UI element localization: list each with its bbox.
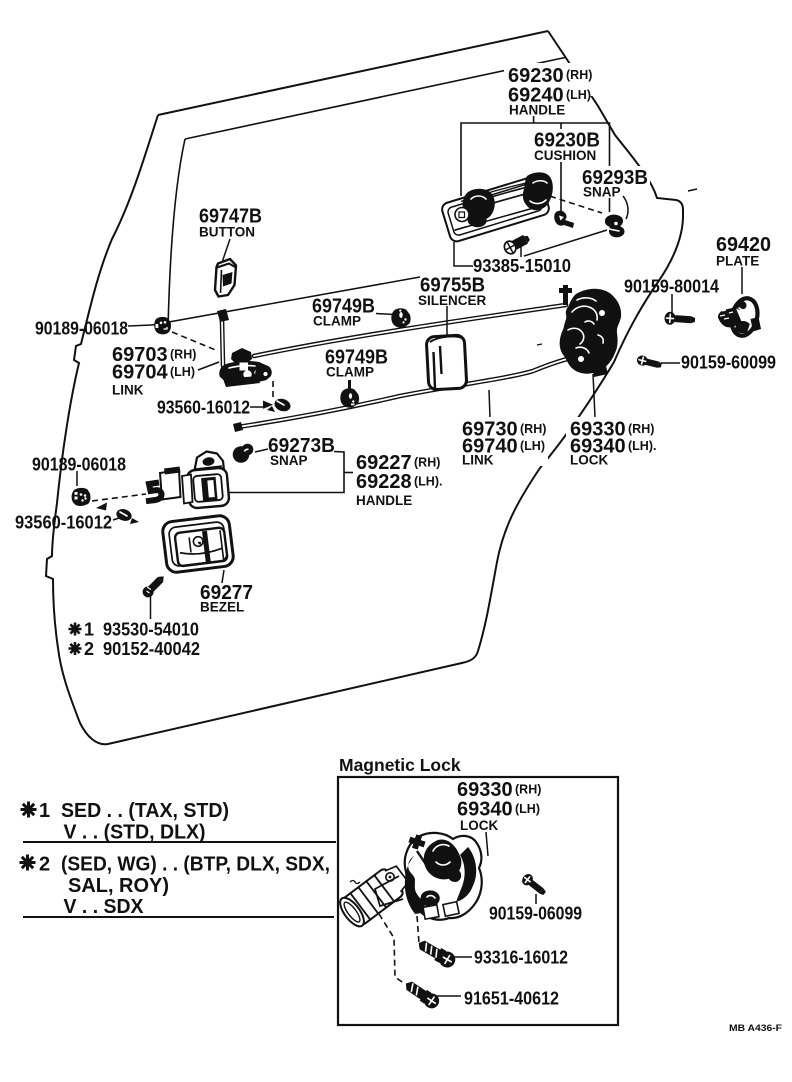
svg-text:69228: 69228 [356,471,412,493]
svg-text:90159-80014: 90159-80014 [624,277,719,297]
svg-text:2: 2 [39,854,50,876]
svg-text:(LH).: (LH). [414,475,442,489]
svg-text:(RH): (RH) [566,68,592,82]
svg-text:(RH): (RH) [170,348,196,362]
svg-text:90189-06018: 90189-06018 [32,455,126,475]
svg-text:1: 1 [84,620,94,640]
svg-text:LINK: LINK [112,383,144,398]
svg-text:LOCK: LOCK [460,818,498,833]
svg-text:(LH).: (LH). [628,439,656,453]
svg-text:(RH): (RH) [520,422,546,436]
svg-text:CLAMP: CLAMP [313,314,361,329]
svg-text:V . . SDX: V . . SDX [64,896,145,918]
svg-text:90152-40042: 90152-40042 [103,639,200,659]
svg-text:90159-60099: 90159-60099 [681,353,776,373]
svg-text:90189-06018: 90189-06018 [35,319,128,339]
svg-text:(LH): (LH) [170,365,195,379]
svg-text:(RH): (RH) [515,783,541,797]
svg-text:SED . . (TAX, STD): SED . . (TAX, STD) [61,800,229,822]
svg-text:91651-40612: 91651-40612 [464,989,559,1009]
svg-text:Magnetic Lock: Magnetic Lock [339,755,461,775]
svg-text:93316-16012: 93316-16012 [474,948,568,968]
svg-text:90159-06099: 90159-06099 [489,904,582,924]
svg-text:PLATE: PLATE [716,254,759,269]
svg-text:2: 2 [84,639,94,659]
svg-text:CUSHION: CUSHION [534,148,596,163]
svg-text:HANDLE: HANDLE [509,103,565,118]
svg-text:93530-54010: 93530-54010 [103,620,199,640]
svg-text:V . . (STD, DLX): V . . (STD, DLX) [64,822,206,844]
svg-text:(LH): (LH) [566,88,591,102]
svg-text:(SED, WG) . . (BTP, DLX, SDX,: (SED, WG) . . (BTP, DLX, SDX, [61,854,330,876]
svg-text:HANDLE: HANDLE [356,493,412,508]
svg-text:(LH): (LH) [520,439,545,453]
svg-text:BUTTON: BUTTON [199,225,255,240]
svg-text:SNAP: SNAP [270,453,308,468]
svg-text:(LH): (LH) [515,802,540,816]
svg-text:LINK: LINK [462,453,494,468]
svg-text:MB A436-F: MB A436-F [729,1023,782,1034]
svg-text:SILENCER: SILENCER [418,293,487,308]
svg-text:SNAP: SNAP [583,185,621,200]
svg-text:93560-16012: 93560-16012 [15,513,112,533]
svg-text:SAL, ROY): SAL, ROY) [68,875,169,897]
svg-text:1: 1 [39,800,50,822]
svg-text:93385-15010: 93385-15010 [473,256,571,276]
svg-text:(RH): (RH) [414,456,440,470]
svg-text:93560-16012: 93560-16012 [157,398,250,418]
svg-text:BEZEL: BEZEL [200,600,244,615]
svg-text:69704: 69704 [112,362,168,384]
svg-text:LOCK: LOCK [570,453,608,468]
svg-text:CLAMP: CLAMP [326,365,374,380]
svg-text:(RH): (RH) [628,422,654,436]
